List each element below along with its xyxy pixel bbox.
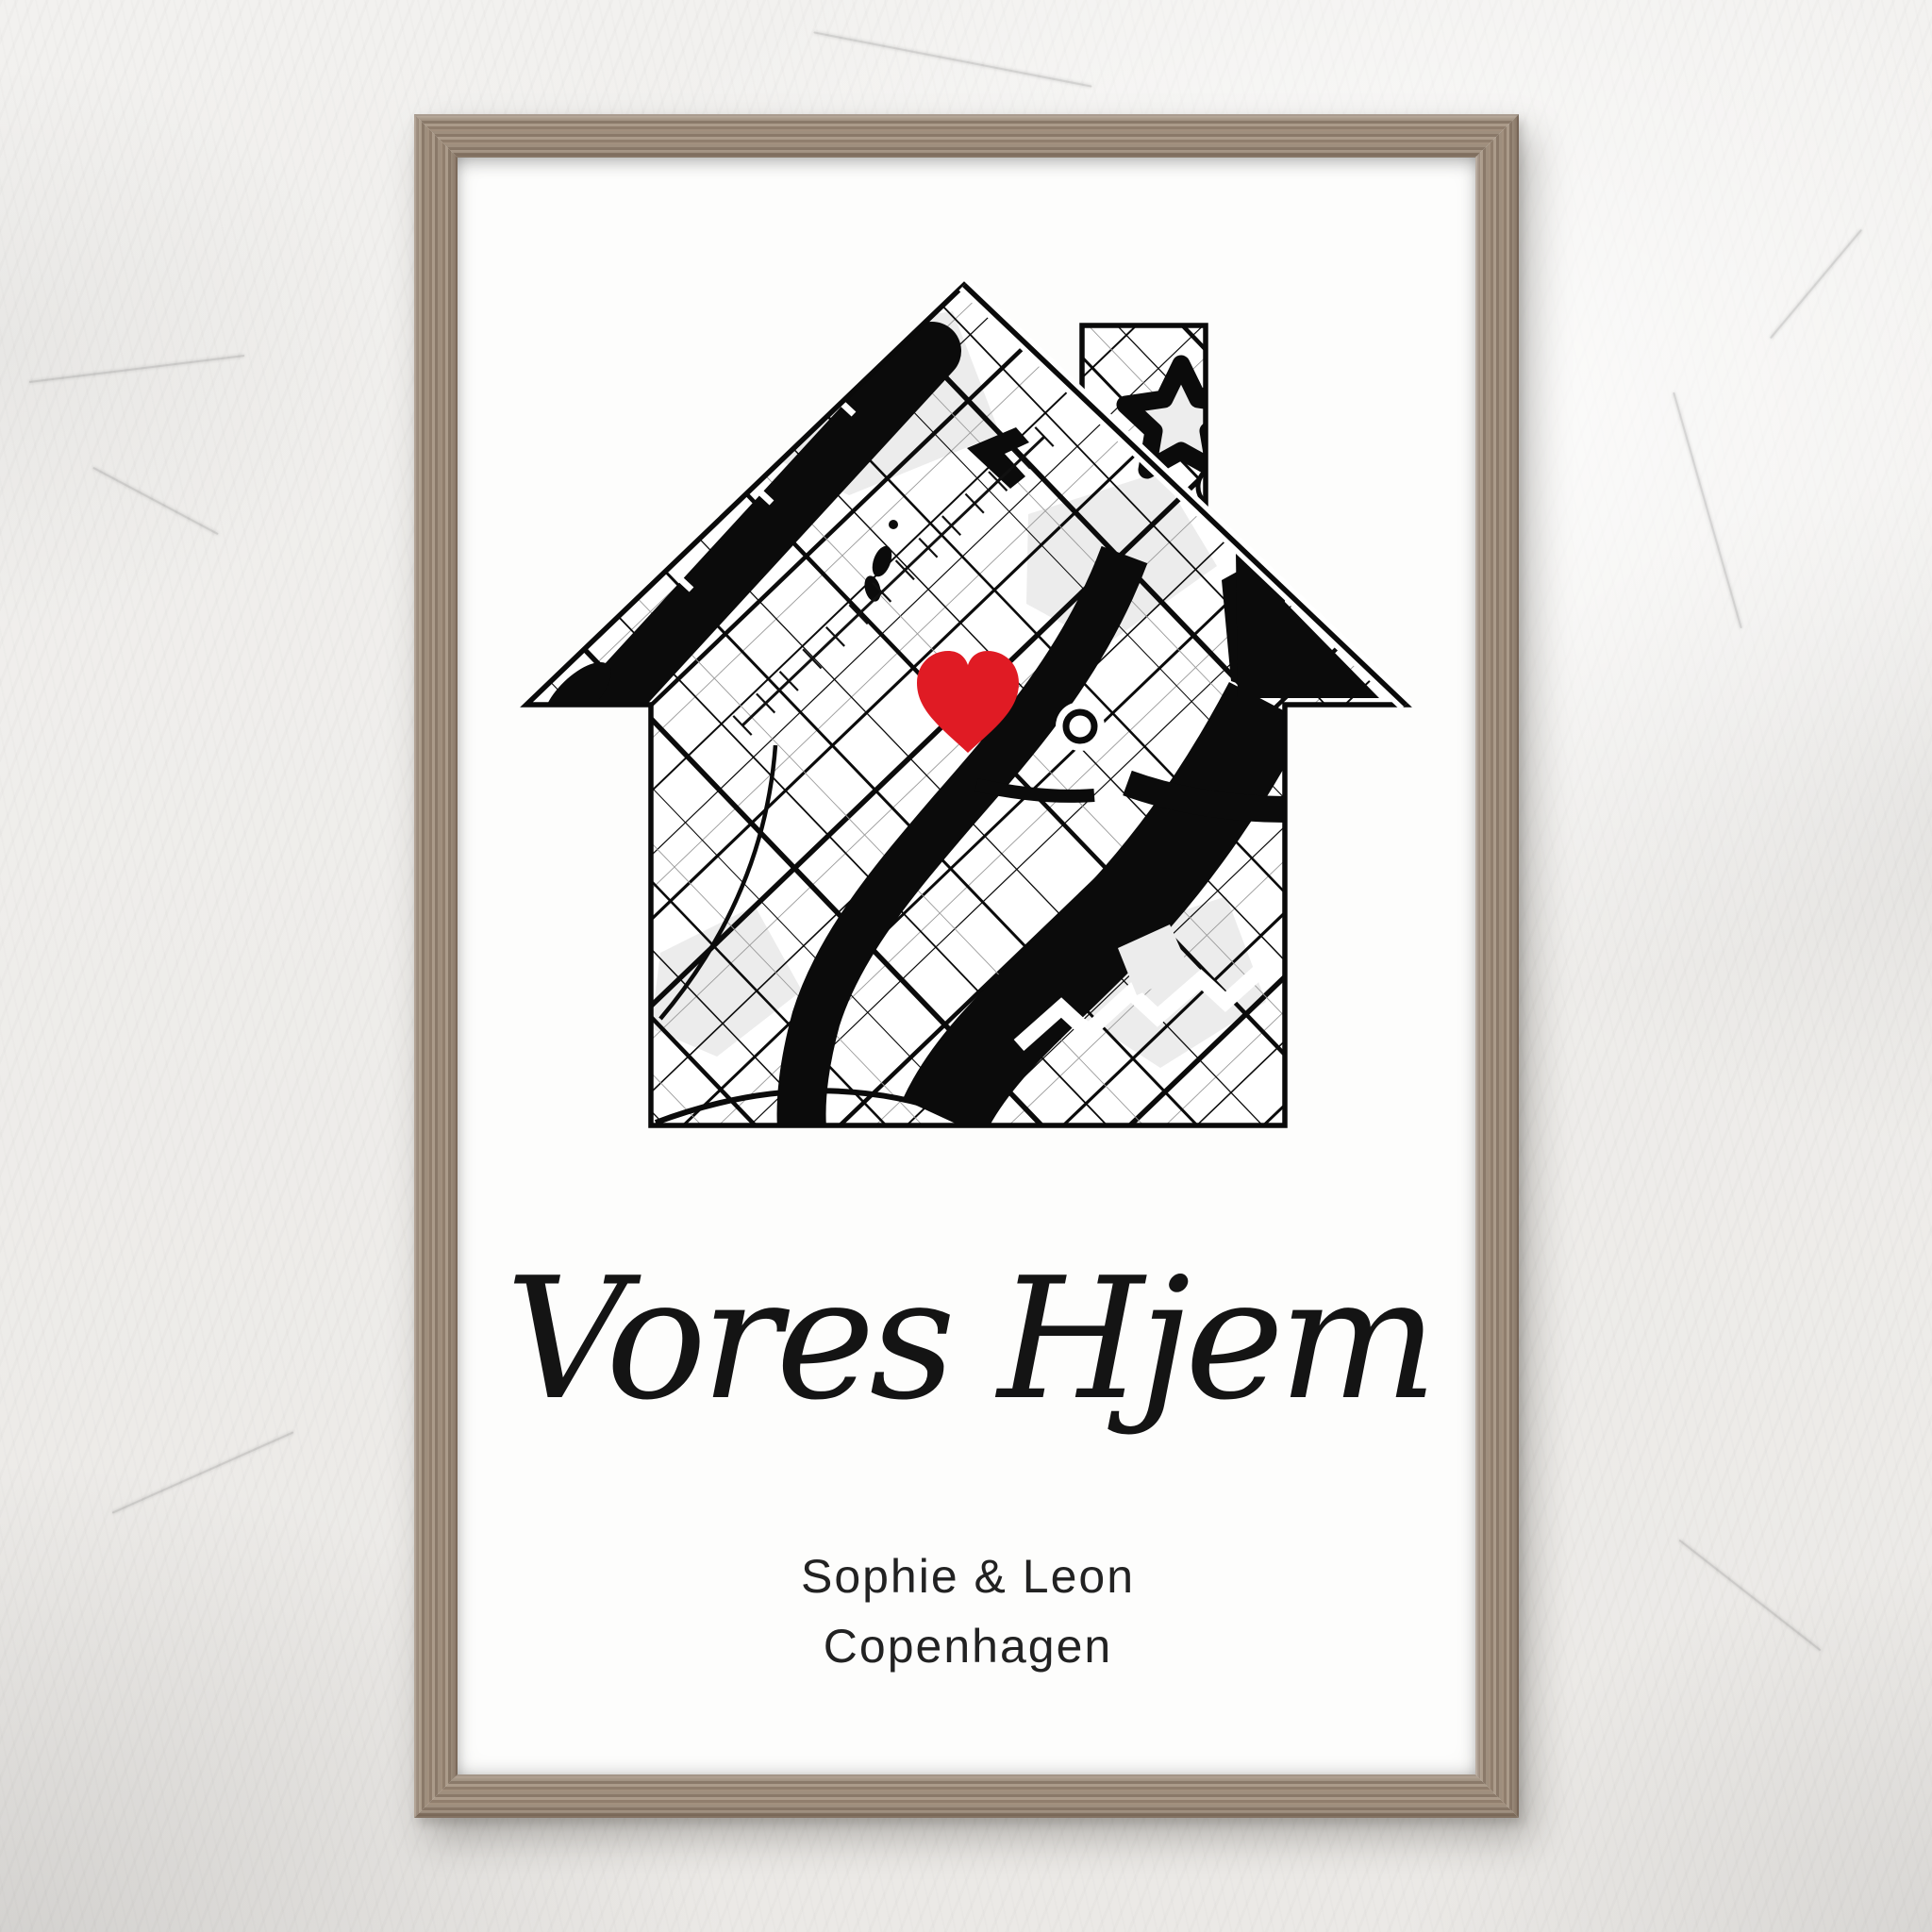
wall: { "poster": { "script_title": "Vores Hje…	[0, 0, 1932, 1932]
map-roundabout	[1056, 702, 1105, 751]
script-title: Vores Hjem	[506, 1241, 1432, 1437]
names-line: Sophie & Leon	[801, 1549, 1135, 1604]
city-line: Copenhagen	[824, 1619, 1112, 1674]
